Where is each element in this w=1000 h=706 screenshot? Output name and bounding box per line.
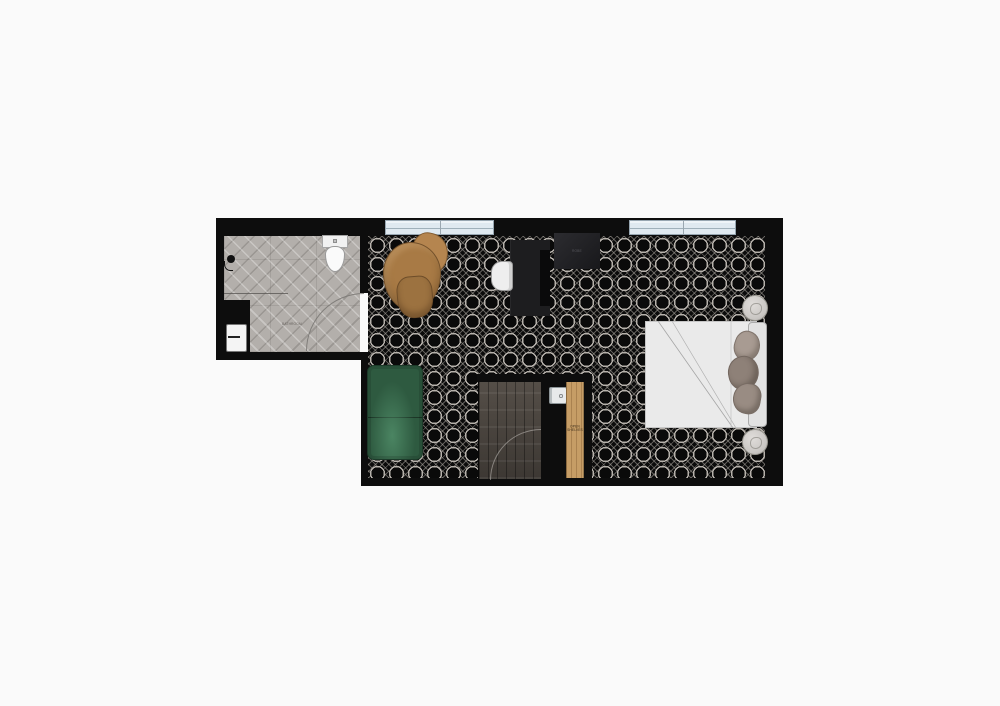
closet-wall-right	[584, 374, 592, 479]
side-stool-bottom	[742, 429, 768, 455]
side-stool-top	[742, 295, 768, 321]
shower-glass-panel	[224, 293, 288, 294]
sink-faucet	[228, 336, 240, 338]
window-right	[629, 220, 736, 235]
lounge-chair-front-cushion	[395, 275, 435, 320]
wardrobe-label: ROBE	[572, 249, 582, 253]
bathroom-label-wrap: BATHROOM	[258, 312, 326, 330]
toilet	[322, 235, 348, 273]
wall-bottom	[361, 478, 783, 486]
floor-plan: BATHROOM ROBE OPEN SHELVES	[0, 0, 1000, 706]
closet-wall-top	[477, 374, 592, 382]
desk-monitor	[540, 250, 550, 306]
appliance	[549, 387, 567, 404]
open-shelves-panel: OPEN SHELVES	[566, 382, 584, 478]
lounge-chair	[380, 230, 452, 320]
green-sofa	[367, 365, 423, 460]
open-shelves-label: OPEN SHELVES	[566, 425, 584, 433]
bathroom-label: BATHROOM	[282, 323, 302, 327]
wardrobe-box: ROBE	[554, 233, 600, 269]
wall-bathroom-divider	[360, 236, 368, 293]
toilet-bowl	[325, 246, 345, 272]
bathroom-sink	[226, 324, 247, 352]
appliance-knob	[559, 394, 563, 398]
toilet-flush-button	[333, 239, 337, 243]
wall-right	[765, 218, 783, 486]
desk-chair	[491, 261, 513, 291]
